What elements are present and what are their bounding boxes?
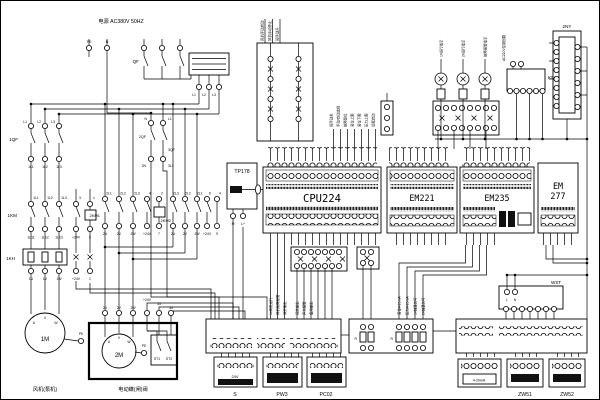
- motor-terminal: V: [118, 336, 121, 340]
- motor-terminal: U: [33, 321, 36, 325]
- em221-top-terminals: [389, 147, 449, 167]
- valve-actuator-box: 2M U V W PE ST1 ST2: [89, 316, 177, 379]
- em221-module: EM221: [387, 167, 457, 233]
- cpu224-module: CPU224: [263, 167, 381, 233]
- wire-label: 2L2: [185, 192, 191, 196]
- dip-switch: [499, 211, 506, 227]
- ai-wire-label: 1#轴温信号: [413, 297, 418, 315]
- motor-1m: 1M U V W PE: [25, 313, 84, 353]
- analog-resistor-strip: R R: [349, 319, 433, 353]
- wire-label: 2W: [130, 306, 136, 310]
- plc-rack: CPU224 EM221 EM235 EM 277: [263, 147, 578, 245]
- wire-label: 1: [93, 196, 95, 200]
- digital-input-wiring: 风机手动启动 风机手动停止 阀手动开 阀手动关 手动/自动选择 故障复位 液位上…: [257, 19, 376, 148]
- cpu-top-terminals: [267, 147, 377, 167]
- feeder1-fan-pump-circuit: L1 L2 L3 1QF 1L1 1L2 1L3 1L1 1L2 1L3 3 1…: [6, 120, 215, 393]
- right-terminal-section: WST L N 4-20mA ZW51 ZW52: [341, 275, 587, 398]
- ai-wire-label: 2#轴温信号: [421, 297, 426, 315]
- line-filter-block: [189, 53, 229, 75]
- upper-contact-boxes: [381, 93, 499, 149]
- device-zw51: ZW51: [507, 359, 543, 398]
- dip-switch: [508, 211, 515, 227]
- breaker-2qf-label: 2QF: [139, 135, 147, 139]
- motor-1m-label: 1M: [41, 337, 49, 343]
- wiring-diagram-page: 电源 AC380V 50HZ PE N QF L1 L2 L3 L1 L2 L3…: [0, 0, 600, 400]
- do-wire-label: 1#风机运行: [268, 297, 273, 315]
- device-zw52: ZW52: [549, 359, 585, 398]
- cpu224-label: CPU224: [303, 193, 341, 205]
- wire-label: 1V: [43, 277, 48, 281]
- em235-module: EM235: [460, 167, 534, 233]
- wire-label: 7: [158, 232, 160, 236]
- wire-label: +24V: [143, 298, 152, 302]
- wire-label: 1L2: [47, 196, 53, 200]
- wire-label: 6: [209, 192, 211, 196]
- valve-caption: 电动蝶(闸)阀: [118, 385, 147, 393]
- do-wire-label: 备用输出: [309, 301, 314, 315]
- wire-label: L2: [37, 120, 41, 124]
- wire-label: 2L2: [120, 192, 126, 196]
- wst-transmitter: WST L N: [499, 275, 587, 319]
- em235-label: EM235: [484, 193, 509, 203]
- cpu-bottom-wires: [267, 233, 377, 245]
- di-wire-label: 液位上限: [350, 113, 355, 127]
- power-title: 电源 AC380V 50HZ: [98, 17, 143, 25]
- center-terminal-strip: 24V S PW3 PC02: [206, 319, 346, 398]
- motor-terminal: W: [127, 340, 131, 344]
- supply-s-label: S: [233, 392, 237, 398]
- relay-k5a: K5A: [507, 61, 558, 139]
- control-power-label: AC220V控制回路: [501, 34, 506, 61]
- lamp-label: 故障报警指示: [483, 36, 488, 57]
- interposing-relay-box: [291, 247, 347, 271]
- di-wire-label: 远程启动: [371, 113, 376, 127]
- wire-label: N: [145, 117, 148, 121]
- wire-label: 2L1: [106, 192, 112, 196]
- motor-terminal: V: [44, 316, 47, 320]
- di-wire-label: 压力上限: [364, 113, 369, 127]
- di-wire-label: 手动/自动选择: [336, 105, 341, 127]
- wire-label: 2V: [183, 232, 188, 236]
- wire-label: 1W: [56, 277, 62, 281]
- contactor-2km2-label: 2KM2: [161, 218, 172, 223]
- wst-n-terminal: N: [514, 298, 517, 302]
- wst-l-terminal: L: [506, 298, 508, 302]
- wire-label: 34: [169, 306, 173, 310]
- limit-switch-st2: ST2: [166, 357, 172, 361]
- transmitter-range-label: 4-20mA: [473, 379, 486, 383]
- wire-label: 2W: [194, 232, 200, 236]
- wire-label: 33: [157, 302, 161, 306]
- di-wire-label: 阀手动开: [275, 27, 280, 41]
- em235-bottom-wires: [463, 233, 496, 245]
- di-wire-label: 故障复位: [343, 113, 348, 127]
- qf-breaker-label: QF: [133, 59, 140, 64]
- wire-label: +24V: [72, 277, 81, 281]
- em277-label: EM: [553, 181, 563, 191]
- l1-label: L1: [192, 93, 196, 97]
- motor-2m-label: 2M: [115, 353, 123, 359]
- wire-label: 9: [216, 232, 218, 236]
- wire-label: L1: [23, 120, 27, 124]
- wire-label: 2V: [117, 306, 122, 310]
- wire-label: 2U: [103, 306, 108, 310]
- do-wire-label: 阀开输出: [282, 301, 287, 315]
- level-transmitter-box: 4-20mA: [458, 359, 501, 387]
- wire-label: +24V: [203, 232, 212, 236]
- em277-label2: 277: [550, 191, 565, 201]
- wire-label: L3: [51, 120, 55, 124]
- module-2ny: 2NY: [549, 24, 587, 139]
- pushbutton-box: [257, 43, 313, 141]
- 2ny-label: 2NY: [563, 24, 572, 29]
- pe-terminal-label: PE: [79, 332, 84, 336]
- wire-label: +24V: [72, 236, 81, 240]
- zw51-label: ZW51: [518, 392, 532, 398]
- wire-label: +24V: [143, 232, 152, 236]
- di-wire-label: 阀手动关: [329, 113, 334, 127]
- thermal-1kh-label: 1KH: [6, 256, 15, 261]
- em221-label: EM221: [409, 193, 434, 203]
- lamp-label: 1#运行指示: [439, 39, 444, 57]
- contactor-1km: [31, 207, 96, 227]
- hmi-lplus-terminal: L+: [241, 222, 245, 226]
- wire-label: 1L3: [61, 196, 67, 200]
- l2-label: L2: [202, 93, 206, 97]
- meter-pw3: PW3: [263, 357, 302, 398]
- limit-switch-st1: ST1: [154, 357, 160, 361]
- fan-pump-caption: 风机(泵机): [33, 385, 57, 393]
- resistor-label: R: [355, 337, 358, 341]
- em235-top-terminals: [462, 147, 530, 167]
- resistor-label: R: [391, 337, 394, 341]
- breaker-3qf-label: 3QF: [168, 148, 176, 152]
- meter-pw3-label: PW3: [276, 392, 287, 398]
- pe-terminal-label: PE: [142, 344, 147, 348]
- wire-label: 2N: [142, 164, 147, 168]
- zw52-label: ZW52: [560, 392, 574, 398]
- electrical-schematic: 电源 AC380V 50HZ PE N QF L1 L2 L3 L1 L2 L3…: [1, 1, 600, 400]
- motor-terminal: W: [54, 321, 58, 325]
- indicator-lamps: 1#运行指示 2#运行指示 故障报警指示: [435, 36, 491, 139]
- lamp-label: 2#运行指示: [461, 39, 466, 57]
- wire-label: 4: [219, 192, 221, 196]
- breaker-1qf-label: 1QF: [9, 137, 18, 142]
- wire-label: 2L3: [134, 192, 140, 196]
- wire-label: 1: [89, 277, 91, 281]
- do-wire-label: 风机故障报警: [275, 294, 280, 315]
- wire-label: L1: [168, 117, 172, 121]
- contactor-2km1: [105, 202, 165, 224]
- wst-label: WST: [551, 280, 561, 285]
- qf-breaker: [144, 51, 184, 73]
- di-wire-label: 液位下限: [357, 113, 362, 127]
- wire-label: 2L3: [173, 192, 179, 196]
- meter-pc02: PC02: [307, 357, 346, 398]
- contactor-2km1-label: 2KM1: [90, 213, 101, 218]
- wire-label: 2: [161, 192, 163, 196]
- l3-label: L3: [212, 93, 216, 97]
- supply-voltage-label: 24V: [231, 374, 238, 379]
- di-wire-label: 风机手动启动: [260, 20, 265, 41]
- wire-label: 2V: [117, 232, 122, 236]
- k5a-contact-box: [357, 247, 379, 319]
- do-wire-label: 阀关输出: [295, 301, 300, 315]
- tp178-label: TP178: [234, 169, 249, 175]
- ai-wire-label: 压力4-20mA: [405, 296, 410, 315]
- em277-bottom-wires: [541, 233, 573, 245]
- do-wire-label: 声光报警: [302, 301, 307, 315]
- wire-label: 2L1: [197, 192, 203, 196]
- contactor-1km-label: 1KM: [8, 213, 18, 218]
- contactor-2km2: [173, 202, 217, 224]
- em277-module: EM 277: [538, 163, 578, 233]
- power-input-section: 电源 AC380V 50HZ PE N QF L1 L2 L3: [86, 17, 229, 120]
- ai-wire-label: 液位4-20mA: [397, 296, 402, 315]
- wire-label: 3L1: [168, 164, 174, 168]
- wire-label: 3: [79, 196, 81, 200]
- meter-pc02-label: PC02: [320, 392, 333, 398]
- em221-bottom-wires: [390, 233, 452, 245]
- di-wire-label: 风机手动停止: [267, 20, 272, 41]
- power-supply-s: 24V S: [214, 357, 257, 398]
- wire-label: 1L1: [33, 196, 39, 200]
- wire-label: 2W: [130, 232, 136, 236]
- motor-terminal: U: [108, 340, 111, 344]
- hmi-tp178: TP178 M L+: [227, 163, 263, 319]
